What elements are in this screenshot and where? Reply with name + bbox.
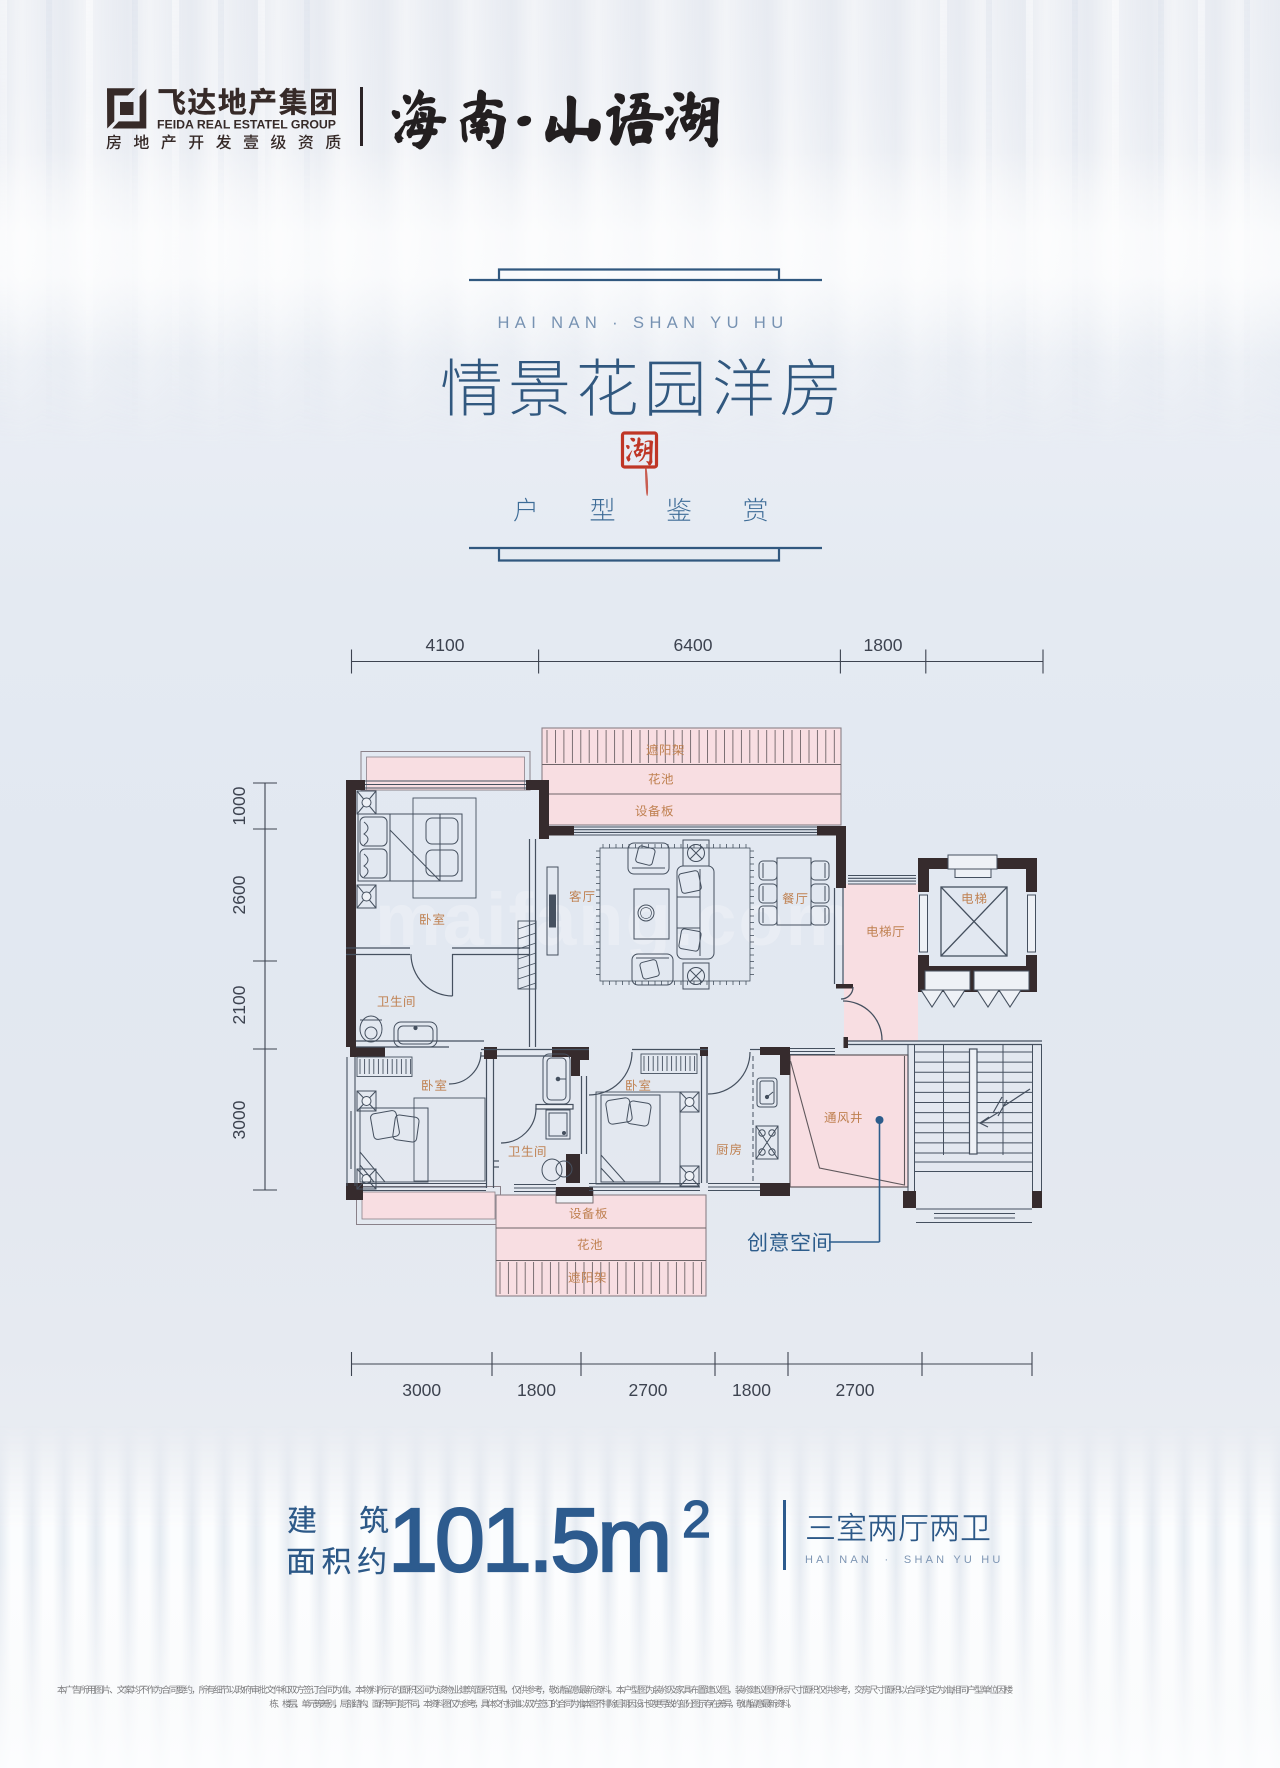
svg-text:2700: 2700	[836, 1380, 875, 1400]
svg-text:2600: 2600	[229, 875, 249, 914]
svg-text:HAI NAN · SHAN YU HU: HAI NAN · SHAN YU HU	[805, 1554, 1004, 1566]
svg-text:6400: 6400	[674, 635, 713, 655]
svg-text:1800: 1800	[864, 635, 903, 655]
svg-text:3000: 3000	[402, 1380, 441, 1400]
svg-text:4100: 4100	[426, 635, 465, 655]
svg-text:3000: 3000	[229, 1100, 249, 1139]
svg-text:1800: 1800	[732, 1380, 771, 1400]
svg-text:101.5m: 101.5m	[388, 1491, 669, 1591]
svg-text:1000: 1000	[229, 786, 249, 825]
svg-text:maifang.com: maifang.com	[375, 878, 853, 961]
svg-text:FEIDA REAL ESTATEL GROUP: FEIDA REAL ESTATEL GROUP	[157, 118, 336, 132]
svg-text:1800: 1800	[517, 1380, 556, 1400]
svg-text:HAI NAN · SHAN YU HU: HAI NAN · SHAN YU HU	[497, 314, 788, 332]
svg-text:2: 2	[682, 1491, 711, 1549]
svg-text:2100: 2100	[229, 985, 249, 1024]
svg-text:2700: 2700	[629, 1380, 668, 1400]
